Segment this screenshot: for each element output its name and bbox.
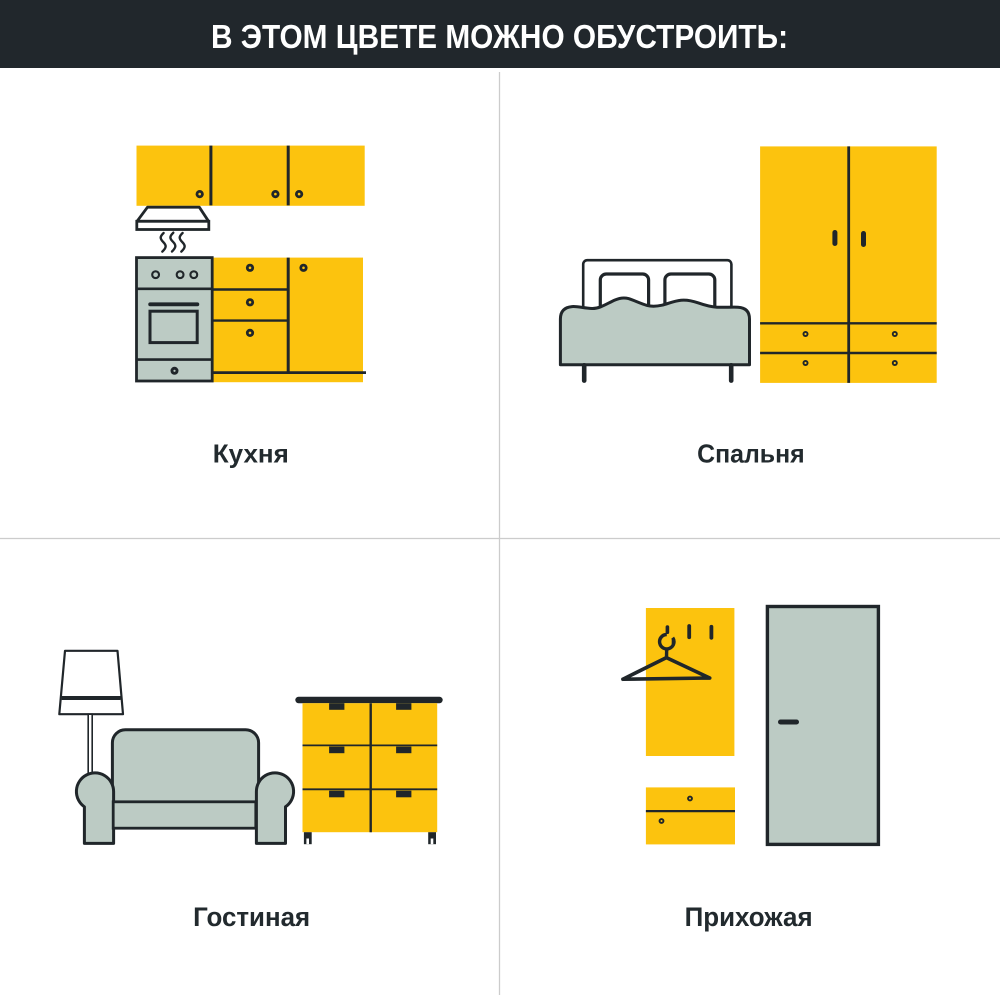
svg-text:Гостиная: Гостиная bbox=[193, 902, 310, 932]
svg-text:Кухня: Кухня bbox=[213, 438, 289, 468]
svg-text:Спальня: Спальня bbox=[697, 438, 805, 468]
svg-text:Прихожая: Прихожая bbox=[685, 902, 813, 932]
svg-text:В ЭТОМ ЦВЕТЕ МОЖНО ОБУСТРОИТЬ:: В ЭТОМ ЦВЕТЕ МОЖНО ОБУСТРОИТЬ: bbox=[211, 18, 788, 55]
